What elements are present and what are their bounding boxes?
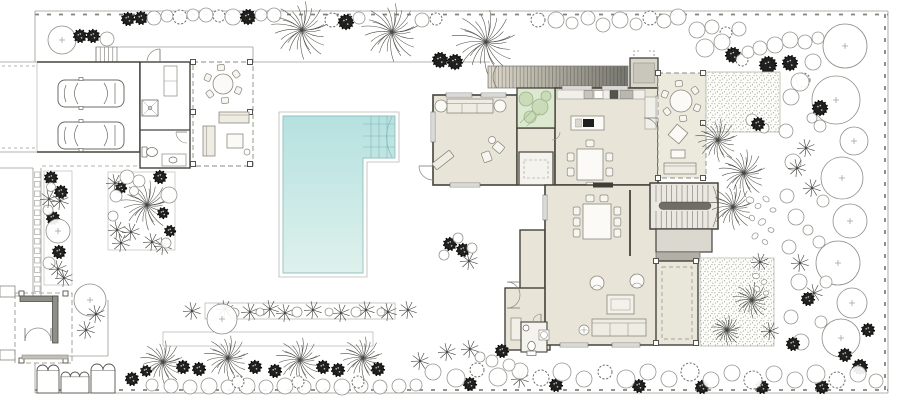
site-plan-page [0,0,900,419]
site-plan-drawing [0,0,900,419]
